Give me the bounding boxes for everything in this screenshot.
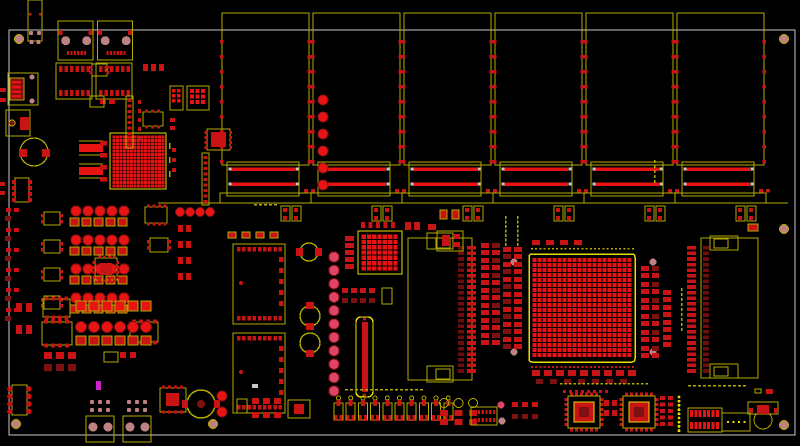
small-ic — [41, 240, 63, 253]
rj45-jack — [58, 21, 93, 60]
mounting-hole — [780, 35, 789, 44]
small-ic — [43, 297, 70, 320]
soic8 — [12, 178, 32, 202]
card-slot — [220, 13, 315, 221]
connector-4pin — [722, 413, 750, 431]
decoupling-caps — [663, 320, 671, 332]
small-ic — [288, 400, 310, 418]
sot23 — [395, 396, 404, 421]
buzzer — [182, 390, 220, 418]
small-ic — [42, 320, 72, 348]
inductor — [296, 243, 322, 261]
power-jack — [6, 110, 30, 136]
chip-outline — [104, 352, 118, 362]
decoupling-caps — [481, 273, 500, 285]
decoupling-caps — [663, 305, 671, 317]
sot23 — [383, 396, 392, 421]
decoupling-caps — [481, 258, 500, 270]
sot23 — [432, 396, 441, 421]
decoupling-caps — [481, 333, 500, 345]
pad — [252, 384, 258, 388]
soic-wide — [233, 244, 285, 324]
magnetics-ic — [170, 86, 183, 110]
fiducial — [650, 259, 657, 266]
passive — [5, 228, 19, 241]
small-ic — [145, 205, 167, 226]
small-ic — [147, 238, 171, 252]
bga-large — [529, 248, 635, 368]
chip-outline — [382, 288, 392, 304]
top-connector — [28, 0, 42, 44]
component-magenta — [96, 381, 101, 390]
sot23 — [334, 396, 343, 421]
pin-header — [660, 396, 673, 426]
decoupling-caps — [641, 314, 659, 326]
led — [498, 402, 505, 409]
decoupling-caps — [641, 266, 659, 278]
sot23 — [419, 396, 428, 421]
card-slot — [493, 13, 588, 221]
usb-connector — [8, 73, 38, 105]
sodimm-socket-left — [408, 233, 476, 382]
vertical-connector — [356, 317, 373, 397]
decoupling-caps — [481, 288, 500, 300]
lan-transformer — [96, 63, 132, 99]
passive — [5, 208, 19, 221]
decoupling-caps — [503, 307, 522, 319]
rj45-jack — [98, 21, 133, 60]
mounting-hole-small — [499, 418, 506, 425]
passive — [16, 325, 32, 334]
passive — [16, 303, 32, 312]
passive — [5, 268, 19, 281]
qfn — [205, 129, 233, 150]
sot23 — [444, 396, 453, 421]
decoupling-caps — [503, 337, 522, 349]
cap-bank-row — [70, 235, 129, 255]
small-ic — [143, 110, 163, 129]
decoupling-caps — [641, 330, 659, 342]
passive — [178, 241, 191, 248]
sot23 — [346, 396, 355, 421]
passive — [5, 288, 19, 301]
passive — [178, 225, 191, 232]
pcb-editor-viewport — [0, 0, 800, 446]
decoupling-caps — [503, 277, 522, 289]
qfn-large — [620, 393, 659, 432]
decoupling-caps — [641, 298, 659, 310]
decoupling-caps — [503, 292, 522, 304]
decoupling-caps — [481, 318, 500, 330]
battery-holder — [748, 402, 778, 429]
fiducial — [511, 349, 518, 356]
pad — [748, 224, 758, 231]
passive — [178, 257, 191, 264]
transformer — [79, 141, 103, 178]
qfn-large — [565, 393, 604, 432]
pad — [428, 224, 436, 230]
power-connector — [123, 400, 151, 442]
magnetics-ic — [187, 86, 209, 110]
pcb-layout-canvas[interactable] — [0, 0, 800, 446]
small-ic — [41, 268, 63, 281]
small-ic — [41, 212, 63, 225]
cap — [454, 399, 463, 426]
lan-transformer — [56, 63, 92, 99]
mounting-hole — [780, 421, 789, 430]
qfn — [160, 386, 186, 414]
decoupling-caps — [503, 322, 522, 334]
pad — [755, 389, 761, 393]
power-connector — [86, 400, 114, 442]
inductor — [300, 333, 320, 357]
header-block — [688, 408, 722, 432]
sot23 — [407, 396, 416, 421]
pad-strip — [202, 153, 209, 205]
decoupling-caps — [503, 247, 522, 259]
mounting-hole — [15, 35, 24, 44]
mounting-hole — [209, 420, 218, 429]
mounting-hole — [780, 225, 789, 234]
sot23 — [358, 396, 367, 421]
card-slot — [584, 13, 679, 221]
passive — [178, 273, 191, 280]
passive — [5, 248, 19, 261]
card-slot — [675, 13, 770, 221]
dip8 — [7, 385, 32, 415]
cap-bank-row — [70, 206, 129, 226]
decoupling-caps — [663, 335, 671, 347]
mounting-hole — [12, 420, 21, 429]
bga-medium — [100, 133, 171, 189]
card-slot — [402, 13, 497, 221]
decoupling-caps — [481, 303, 500, 315]
sot23 — [371, 396, 380, 421]
bga-small — [345, 222, 402, 274]
coin-cell-battery — [19, 138, 50, 166]
sodimm-socket-right — [687, 236, 758, 378]
pad — [766, 389, 773, 394]
decoupling-caps — [481, 243, 500, 255]
inductor — [300, 302, 320, 330]
decoupling-caps — [663, 290, 671, 302]
decoupling-caps — [641, 282, 659, 294]
